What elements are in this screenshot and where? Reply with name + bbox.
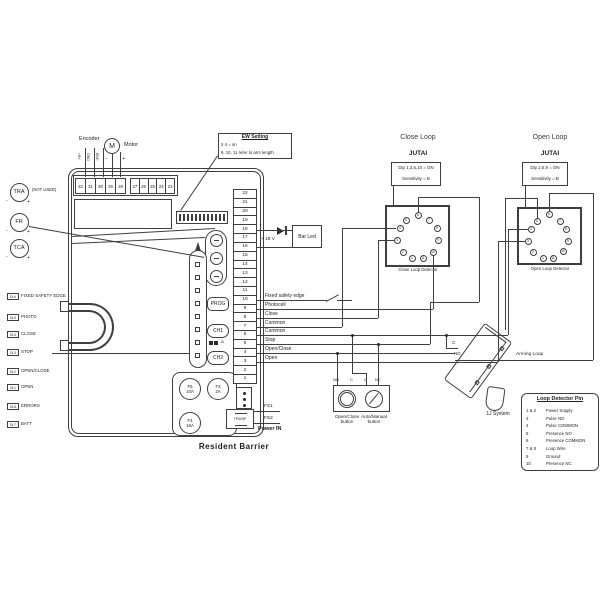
- led-square: [195, 327, 200, 332]
- dip-tooth: [191, 214, 193, 221]
- led-legend-label: OPEN/CLOSE: [21, 369, 50, 374]
- dip-tooth: [203, 214, 205, 221]
- wire: [455, 360, 593, 361]
- open-loop-caption: Open Loop Detector: [515, 267, 585, 272]
- board-title: Resident Barrier: [184, 443, 284, 452]
- dip-tooth: [219, 214, 221, 221]
- 1j-system-c-label: C: [452, 341, 455, 346]
- close-loop-pin: 2: [400, 249, 407, 256]
- not-used-note: (NOT USED): [32, 188, 56, 193]
- open-loop-pin: 5: [534, 218, 541, 225]
- terminal-row-label: Close: [265, 312, 278, 318]
- wire: [430, 302, 479, 303]
- wire: [257, 230, 292, 231]
- wire: [498, 241, 499, 362]
- led-id-box: DL2: [7, 368, 19, 375]
- led-strip-tip: [195, 242, 201, 251]
- pin-table-desc: Presence COMMON: [546, 439, 585, 444]
- spring-cap-top: [60, 301, 69, 312]
- close-loop-pin: 5: [403, 217, 410, 224]
- pin-table-desc: Pulse NO: [546, 417, 564, 422]
- dial-tra-minus: -: [6, 199, 8, 205]
- close-loop-pin: 7: [426, 217, 433, 224]
- top-terminal: 23: [165, 178, 175, 194]
- open-loop-pin: 9: [565, 238, 572, 245]
- terminal-row-label: Fixed safety edge: [265, 294, 304, 300]
- btn-terminal-c1: C: [350, 378, 353, 382]
- display-window: [74, 199, 172, 229]
- led-id-box: DL4: [7, 331, 19, 338]
- ch2-button: CH2: [207, 351, 229, 365]
- terminal-row: 1: [233, 374, 257, 384]
- encoder-wire-label: +8V: [76, 153, 80, 160]
- wire: [254, 411, 280, 412]
- terminal-row-label: Common: [265, 329, 285, 335]
- close-loop-sensitivity: Sensitivity = B: [392, 177, 440, 182]
- encoder-label: Encoder: [79, 136, 100, 142]
- wire: [257, 309, 433, 310]
- wire: [446, 335, 447, 348]
- wire: [433, 255, 434, 309]
- wire: [337, 300, 352, 301]
- open-loop-pin: 3: [525, 238, 532, 245]
- wire: [549, 193, 593, 194]
- dip-tooth: [223, 214, 225, 221]
- wire: [366, 373, 367, 385]
- motor-minus: -: [106, 157, 108, 163]
- open-loop-pin: 7: [557, 218, 564, 225]
- wire: [257, 344, 430, 345]
- wire: [418, 197, 419, 212]
- wire-junction: [336, 352, 339, 355]
- wire: [257, 300, 327, 301]
- power-in-label: Power IN: [258, 426, 282, 432]
- close-loop-brand: JUTAI: [385, 150, 451, 157]
- close-loop-caption: Close Loop Detector: [383, 268, 453, 273]
- close-loop-dip-box: Dip 1,3,5,10 = ON Sensitivity = B: [391, 162, 441, 186]
- pin-table-pin: 6: [526, 439, 528, 444]
- dip-tooth: [195, 214, 197, 221]
- wire: [352, 335, 353, 373]
- led-square: [195, 340, 200, 345]
- wire: [378, 344, 379, 385]
- pin-table-desc: Presence NC: [546, 462, 572, 467]
- close-loop-pin: 1: [409, 255, 416, 262]
- wire: [85, 148, 86, 177]
- dial-fr-label: FR: [15, 219, 22, 225]
- led-id-box: DL6: [7, 293, 19, 300]
- open-loop-brand: JUTAI: [517, 150, 583, 157]
- open-loop-pin: 2: [530, 249, 537, 256]
- ew-setting-box: EW Setting 2 4 = on 9, 10, 11 refer to a…: [218, 133, 292, 159]
- wire: [378, 240, 379, 318]
- wire-junction: [351, 334, 354, 337]
- top-terminal-group-1: 3231302928: [76, 178, 126, 194]
- terminal-row-label: Common: [265, 321, 285, 327]
- prog-label: PROG: [211, 301, 226, 307]
- wire: [257, 353, 455, 354]
- auto-manual-button: [365, 390, 383, 408]
- wire: [498, 241, 525, 242]
- open-loop-dip: Dip 2,5,9 = ON: [523, 166, 567, 171]
- open-loop-dip-box: Dip 2,5,9 = ON Sensitivity = B: [522, 162, 568, 186]
- open-loop-pin: 10: [560, 248, 567, 255]
- trimmer-fr: [210, 252, 223, 265]
- open-loop-pin: 4: [528, 226, 535, 233]
- wire: [508, 229, 528, 230]
- dial-tca-label: TCA: [14, 245, 25, 251]
- wire: [593, 193, 594, 360]
- wire: [257, 247, 292, 248]
- dip-tooth: [187, 214, 189, 221]
- ew-setting-line1: 2 4 = on: [221, 143, 237, 148]
- dial-tca-minus: -: [6, 255, 8, 261]
- dial-tra-plus: +: [27, 200, 30, 206]
- led-square: [195, 275, 200, 280]
- trimmer-tca: [210, 270, 223, 283]
- open-loop-pin: 6: [546, 211, 553, 218]
- led-square: [195, 314, 200, 319]
- dip-tooth: [183, 214, 185, 221]
- led-legend-label: BATT: [21, 422, 32, 427]
- wire: [342, 228, 396, 229]
- pin-table-pin: 7 & 8: [526, 447, 536, 452]
- wire: [257, 335, 508, 336]
- wire: [120, 152, 121, 177]
- 1j-system-foot: [484, 386, 505, 412]
- pin-table-pin: 5: [526, 432, 528, 437]
- led-square: [195, 301, 200, 306]
- pin-table-pin: 1 & 2: [526, 409, 536, 414]
- auto-manual-button-caption: Auto/Manualbutton: [354, 414, 394, 424]
- ew-setting-title: EW Setting: [219, 135, 291, 141]
- led-legend-label: STOP: [21, 350, 33, 355]
- trasf-block: TRASF: [226, 409, 254, 429]
- open-loop-pin: 11: [550, 255, 557, 262]
- close-loop-pin: 4: [397, 225, 404, 232]
- fuse-f5: F5 10A: [179, 378, 201, 400]
- plus-18v-label: + 18 V: [261, 237, 275, 242]
- led-symbol: [277, 227, 284, 235]
- fs1-label: FS1: [264, 404, 273, 409]
- close-loop-pin: 8: [434, 225, 441, 232]
- close-loop-dip: Dip 1,3,5,10 = ON: [392, 166, 440, 171]
- wire: [94, 148, 95, 177]
- fuse-f3: F3 2A: [207, 378, 229, 400]
- pin-table-pin: 4: [526, 424, 528, 429]
- pin-table-pin: 9: [526, 455, 528, 460]
- open-loop-title: Open Loop: [517, 134, 583, 142]
- wire: [505, 198, 537, 199]
- pin-table-desc: Presence NO: [546, 432, 572, 437]
- loop-detector-pin-table: Loop Detector Pin 1 & 2Power Supply3Puls…: [521, 393, 599, 471]
- fuse-f3-rating: 2A: [215, 389, 220, 394]
- aux-connector: [236, 387, 252, 409]
- led-id-box: DL7: [7, 421, 19, 428]
- fuse-f5-rating: 10A: [186, 389, 194, 394]
- wire: [337, 353, 338, 385]
- led-id-box: DL3: [7, 349, 19, 356]
- fuse-f4: F4 16A: [179, 412, 201, 434]
- dial-tca: TCA: [10, 239, 29, 258]
- trasf-label: TRASF: [227, 417, 253, 421]
- led-square: [195, 353, 200, 358]
- terminal-row-label: Photocell: [265, 303, 286, 309]
- wire: [430, 302, 431, 344]
- pin-table-desc: Loop Wire: [546, 447, 566, 452]
- open-loop-pin: 1: [540, 255, 547, 262]
- led-legend-label: CLOSE: [21, 332, 36, 337]
- pin-table-desc: Ground: [546, 455, 560, 460]
- top-terminal-group-2: 2726252423: [131, 178, 175, 194]
- led-legend-label: PHOTO: [21, 315, 37, 320]
- 1j-system-caption: 1J System: [478, 412, 518, 418]
- led-id-box: DL1: [7, 384, 19, 391]
- bar-led-minus: -: [260, 222, 262, 228]
- wire: [418, 197, 479, 198]
- btn-terminal-no: NO: [333, 378, 339, 382]
- led-legend-label: OPEN: [21, 385, 33, 390]
- j4-jumper: J4: [209, 341, 225, 346]
- terminal-column: 22212019181716151413121110987654321: [233, 190, 257, 384]
- wire: [479, 197, 480, 302]
- wire: [52, 353, 189, 354]
- dial-fr-minus: -: [6, 229, 8, 235]
- wire: [254, 423, 280, 424]
- wire: [446, 348, 458, 349]
- close-loop-pin: 11: [420, 255, 427, 262]
- wire: [378, 240, 394, 241]
- wire: [525, 186, 526, 207]
- led-id-box: DL5: [7, 314, 19, 321]
- motor-symbol: M: [104, 138, 120, 154]
- led-square: [195, 262, 200, 267]
- spring-cap-bottom: [60, 340, 69, 351]
- spring-u-inner: [66, 310, 106, 344]
- prog-button: PROG: [207, 297, 229, 311]
- pin-table-title: Loop Detector Pin: [522, 397, 598, 403]
- close-loop-pin: 9: [435, 237, 442, 244]
- fs2-label: FS2: [264, 416, 273, 421]
- ew-setting-line2: 9, 10, 11 refer to arm length: [221, 151, 274, 156]
- led-id-box: DL8: [7, 403, 19, 410]
- wire: [352, 373, 366, 374]
- dip-tooth: [179, 214, 181, 221]
- close-loop-pin: 6: [415, 212, 422, 219]
- wire: [505, 198, 506, 330]
- dip-tooth: [207, 214, 209, 221]
- motor-label: Motor: [124, 142, 138, 148]
- bar-led-box: Bar Led: [292, 225, 322, 248]
- wire: [342, 228, 343, 327]
- open-loop-sensitivity: Sensitivity = B: [523, 177, 567, 182]
- led-strip-outline: [189, 250, 207, 368]
- wire: [103, 148, 104, 177]
- dial-fr: FR: [10, 213, 29, 232]
- led-legend-label: FIXED SAFETY EDGE: [21, 294, 66, 299]
- ch2-label: CH2: [213, 355, 223, 361]
- wire-junction: [377, 343, 380, 346]
- wire: [257, 318, 378, 319]
- dial-fr-plus: +: [27, 230, 30, 236]
- motor-m: M: [109, 143, 115, 150]
- top-terminal: 28: [115, 178, 126, 194]
- motor-plus: +: [122, 157, 125, 163]
- wire: [537, 198, 538, 218]
- j4-label: J4: [220, 341, 224, 345]
- terminal-row-label: Open/Close: [265, 347, 291, 353]
- trimmer-tra: [210, 234, 223, 247]
- ch1-button: CH1: [207, 324, 229, 338]
- bar-led-label: Bar Led: [298, 234, 316, 240]
- pin-table-pin: 3: [526, 417, 528, 422]
- pin-table-desc: Pulse COMMON: [546, 424, 578, 429]
- close-loop-title: Close Loop: [385, 134, 451, 142]
- dial-tca-plus: +: [27, 256, 30, 262]
- wire: [112, 154, 113, 177]
- dial-tra: TRA: [10, 183, 29, 202]
- dial-tra-label: TRA: [14, 189, 25, 195]
- wiring-diagram: 3231302928 2726252423 Encoder M Motor - …: [0, 0, 600, 600]
- open-loop-pin: 8: [563, 226, 570, 233]
- close-loop-pin: 3: [394, 237, 401, 244]
- dip-tooth: [211, 214, 213, 221]
- pin-table-desc: Power Supply: [546, 409, 573, 414]
- pin-table-pin: 10: [526, 462, 531, 467]
- terminal-row-label: Open: [265, 356, 277, 362]
- open-close-button: [338, 390, 356, 408]
- wire: [508, 229, 509, 335]
- led-square: [195, 288, 200, 293]
- terminal-row-label: Stop: [265, 338, 275, 344]
- arming-loop-label: Arming Loop: [516, 352, 543, 357]
- dip-tooth: [215, 214, 217, 221]
- wire: [549, 193, 550, 211]
- wire-junction: [445, 334, 448, 337]
- fuse-f4-rating: 16A: [186, 423, 194, 428]
- wire: [393, 186, 394, 205]
- led-legend-label: ERRORS: [21, 404, 40, 409]
- ch1-label: CH1: [213, 328, 223, 334]
- dip-tooth: [199, 214, 201, 221]
